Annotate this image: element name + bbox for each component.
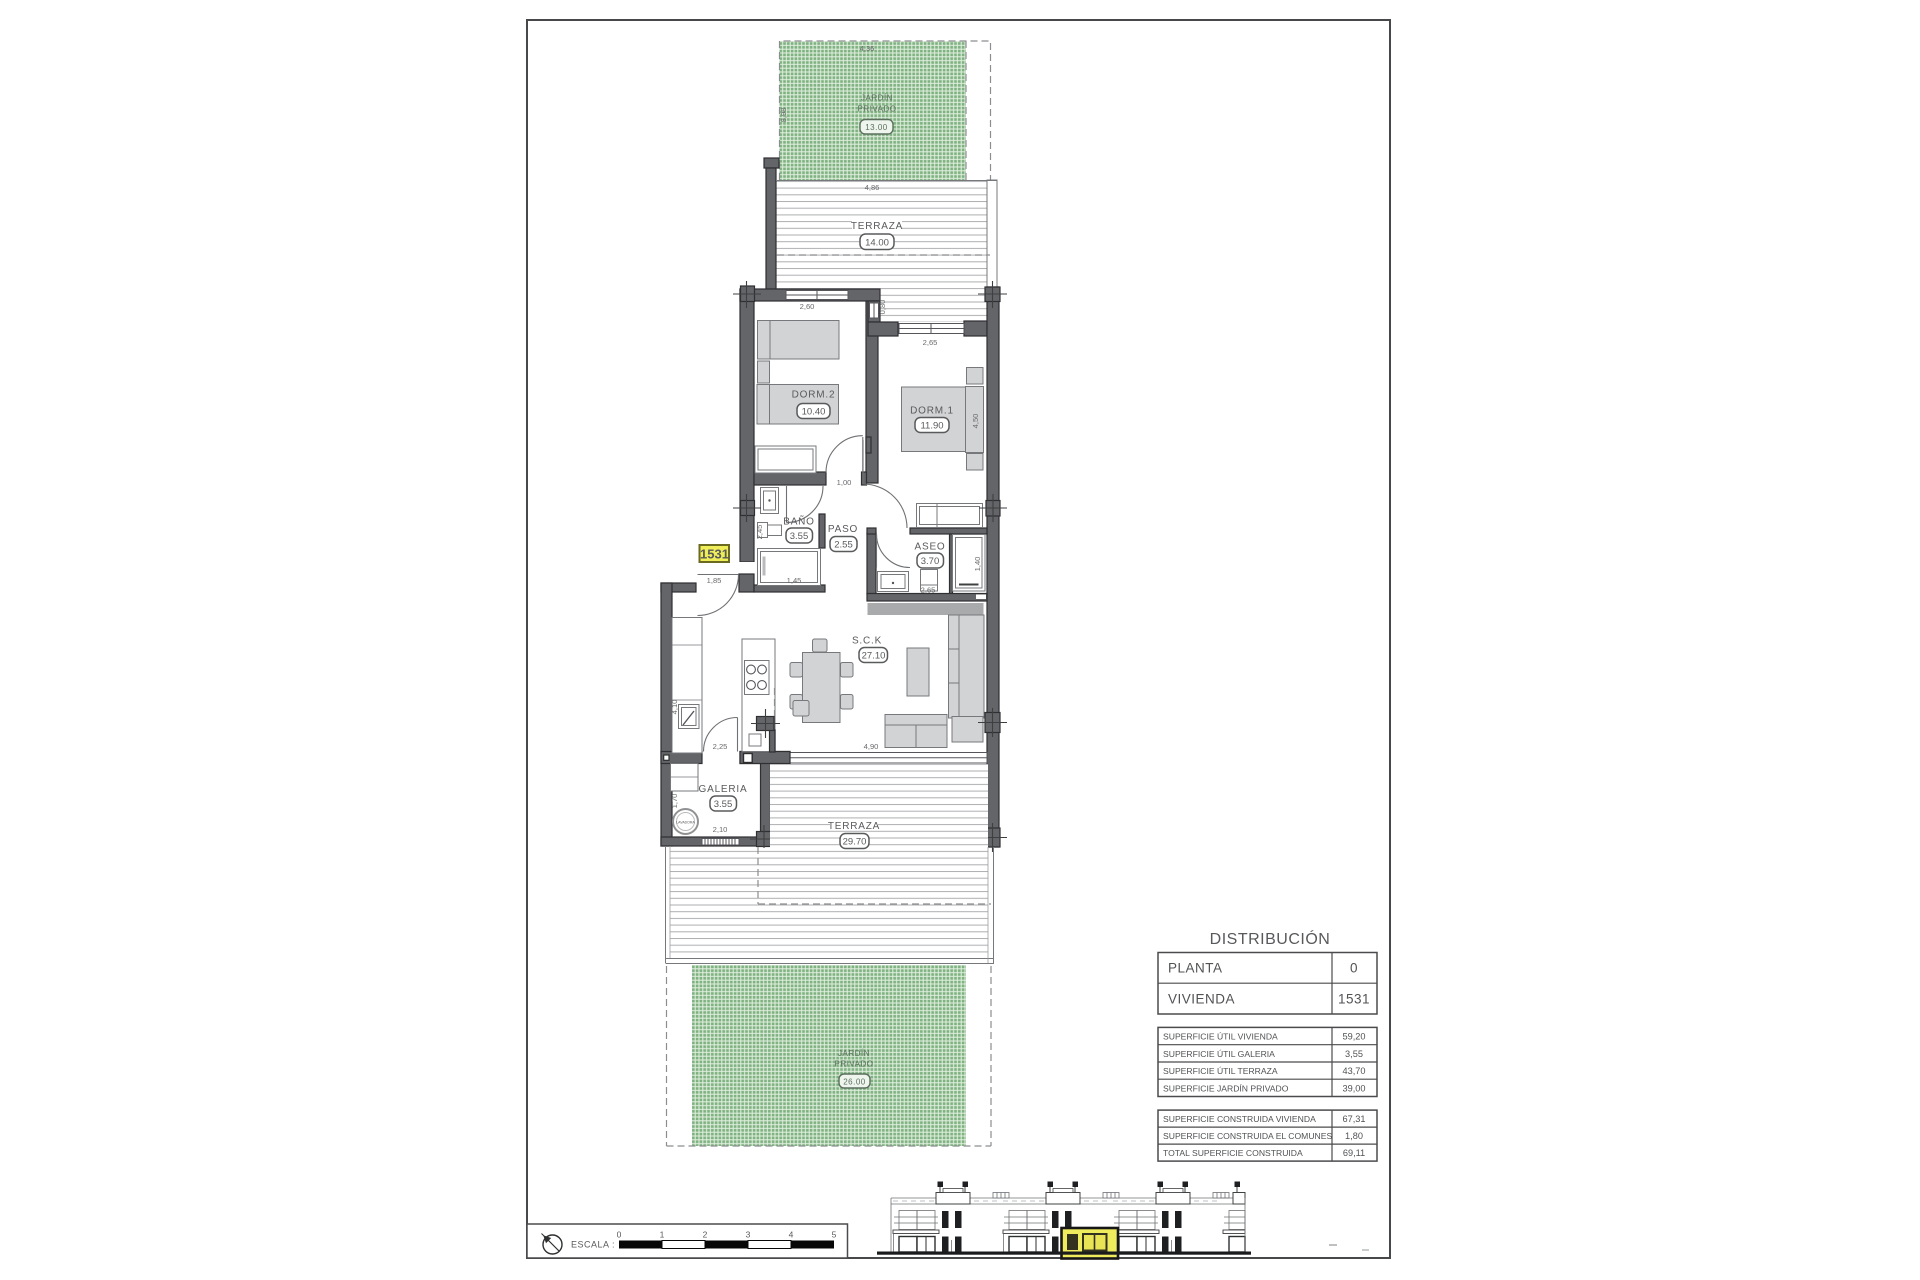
svg-text:1,80: 1,80 — [1345, 1131, 1363, 1141]
svg-text:SUPERFICIE ÚTIL TERRAZA: SUPERFICIE ÚTIL TERRAZA — [1163, 1066, 1278, 1076]
svg-text:SUPERFICIE CONSTRUIDA VIVIENDA: SUPERFICIE CONSTRUIDA VIVIENDA — [1163, 1114, 1316, 1124]
svg-text:59,20: 59,20 — [1343, 1032, 1366, 1042]
svg-text:DISTRIBUCIÓN: DISTRIBUCIÓN — [1210, 929, 1331, 948]
svg-text:3.55: 3.55 — [790, 531, 809, 542]
svg-text:DORM.2: DORM.2 — [792, 390, 836, 401]
svg-text:5: 5 — [832, 1230, 837, 1240]
svg-text:BAÑO: BAÑO — [783, 515, 815, 528]
svg-text:2,60: 2,60 — [800, 302, 815, 311]
svg-text:TOTAL SUPERFICIE CONSTRUIDA: TOTAL SUPERFICIE CONSTRUIDA — [1163, 1148, 1303, 1158]
svg-text:27.10: 27.10 — [862, 651, 886, 662]
svg-text:PRIVADO: PRIVADO — [835, 1060, 874, 1069]
svg-text:1: 1 — [660, 1230, 665, 1240]
svg-text:2,45: 2,45 — [755, 525, 764, 540]
svg-text:ASEO: ASEO — [915, 542, 946, 553]
svg-text:JARDÍN: JARDÍN — [838, 1049, 870, 1058]
svg-text:SUPERFICIE JARDÍN PRIVADO: SUPERFICIE JARDÍN PRIVADO — [1163, 1083, 1289, 1093]
svg-text:PLANTA: PLANTA — [1168, 961, 1223, 976]
svg-text:69,11: 69,11 — [1343, 1148, 1365, 1158]
svg-text:0: 0 — [617, 1230, 622, 1240]
svg-text:1531: 1531 — [1338, 992, 1370, 1007]
svg-text:2.55: 2.55 — [834, 540, 853, 551]
svg-text:ESCALA :: ESCALA : — [571, 1240, 615, 1250]
svg-text:2,65: 2,65 — [923, 338, 938, 347]
svg-text:PRIVADO: PRIVADO — [858, 105, 897, 114]
svg-text:26.00: 26.00 — [843, 1078, 866, 1087]
svg-text:3.55: 3.55 — [714, 799, 733, 810]
svg-text:2,10: 2,10 — [713, 825, 728, 834]
svg-text:4,10: 4,10 — [670, 700, 679, 715]
svg-text:1,70: 1,70 — [670, 794, 679, 809]
svg-text:1,45: 1,45 — [787, 576, 802, 585]
svg-text:SUPERFICIE ÚTIL GALERIA: SUPERFICIE ÚTIL GALERIA — [1163, 1049, 1275, 1059]
svg-text:10.40: 10.40 — [802, 407, 826, 418]
svg-text:29.70: 29.70 — [843, 837, 867, 848]
svg-text:S.C.K: S.C.K — [852, 636, 882, 647]
svg-text:3,55: 3,55 — [1345, 1049, 1363, 1059]
svg-text:JARDÍN: JARDÍN — [861, 94, 893, 103]
svg-text:4,50: 4,50 — [971, 414, 980, 429]
svg-text:4,90: 4,90 — [864, 742, 879, 751]
svg-text:2,25: 2,25 — [713, 742, 728, 751]
svg-text:LAVADORA: LAVADORA — [676, 821, 695, 825]
svg-text:SUPERFICIE ÚTIL VIVIENDA: SUPERFICIE ÚTIL VIVIENDA — [1163, 1032, 1278, 1042]
svg-text:0: 0 — [1350, 961, 1358, 976]
svg-text:TERRAZA: TERRAZA — [828, 821, 880, 832]
svg-text:13.00: 13.00 — [865, 123, 888, 132]
svg-text:4,36: 4,36 — [860, 44, 875, 53]
svg-text:3.70: 3.70 — [921, 556, 940, 567]
svg-text:39,00: 39,00 — [1343, 1083, 1366, 1093]
svg-text:1531: 1531 — [700, 547, 729, 562]
svg-text:4,86: 4,86 — [865, 183, 880, 192]
svg-text:11.90: 11.90 — [920, 421, 943, 432]
svg-text:8,98: 8,98 — [779, 108, 788, 123]
svg-text:1,85: 1,85 — [707, 576, 722, 585]
svg-text:2: 2 — [703, 1230, 708, 1240]
svg-text:43,70: 43,70 — [1343, 1066, 1366, 1076]
svg-text:DORM.1: DORM.1 — [910, 406, 954, 417]
svg-text:SUPERFICIE CONSTRUIDA EL COMUN: SUPERFICIE CONSTRUIDA EL COMUNES — [1163, 1131, 1332, 1141]
svg-text:VIVIENDA: VIVIENDA — [1168, 992, 1235, 1007]
svg-text:GALERIA: GALERIA — [699, 784, 748, 795]
svg-text:4: 4 — [789, 1230, 794, 1240]
svg-text:1,40: 1,40 — [973, 557, 982, 572]
svg-text:67,31: 67,31 — [1343, 1114, 1366, 1124]
svg-text:TERRAZA: TERRAZA — [851, 221, 903, 232]
svg-text:3: 3 — [746, 1230, 751, 1240]
svg-text:14.00: 14.00 — [865, 238, 889, 249]
svg-text:2,65: 2,65 — [921, 586, 936, 595]
svg-text:1,00: 1,00 — [837, 478, 852, 487]
svg-text:PASO: PASO — [828, 524, 858, 535]
svg-text:0,80: 0,80 — [878, 300, 887, 315]
